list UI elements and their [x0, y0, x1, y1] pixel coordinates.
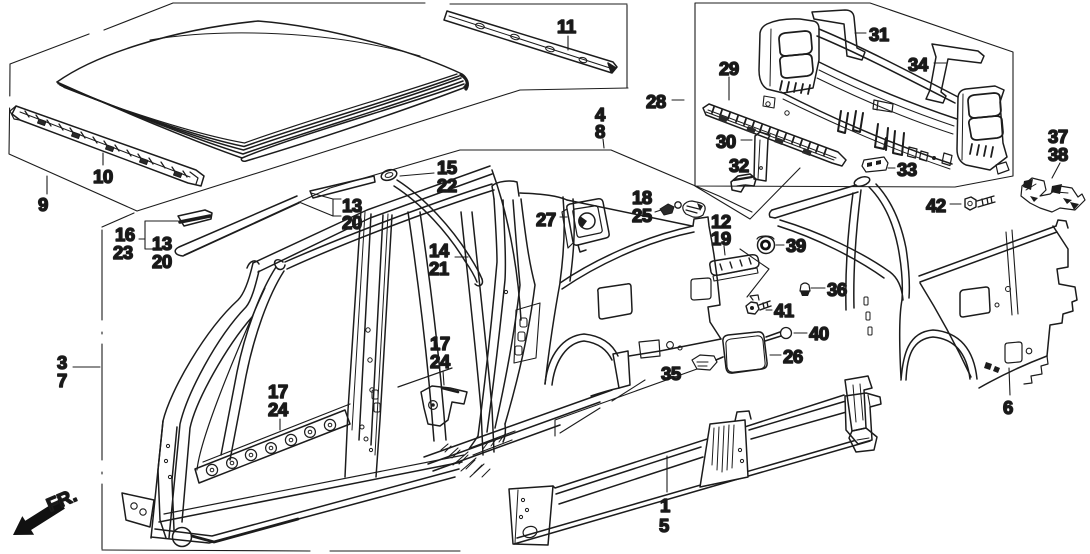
svg-text:29: 29	[719, 58, 739, 79]
svg-text:39: 39	[786, 235, 806, 256]
svg-text:20: 20	[152, 251, 172, 272]
svg-text:28: 28	[646, 91, 666, 112]
svg-text:FR.: FR.	[44, 485, 80, 516]
svg-text:36: 36	[827, 279, 847, 300]
svg-text:30: 30	[716, 131, 736, 152]
svg-text:34: 34	[908, 54, 929, 75]
svg-text:41: 41	[774, 300, 794, 321]
svg-text:8: 8	[595, 121, 605, 142]
svg-text:10: 10	[93, 166, 113, 187]
svg-text:23: 23	[113, 242, 133, 263]
svg-text:6: 6	[1003, 397, 1013, 418]
svg-text:25: 25	[632, 205, 652, 226]
svg-text:24: 24	[430, 351, 451, 372]
svg-text:42: 42	[926, 195, 946, 216]
svg-text:24: 24	[268, 399, 289, 420]
svg-text:1: 1	[660, 495, 670, 516]
svg-text:21: 21	[429, 258, 449, 279]
svg-text:26: 26	[783, 346, 803, 367]
svg-text:19: 19	[711, 228, 731, 249]
svg-text:7: 7	[57, 370, 67, 391]
svg-text:11: 11	[557, 16, 576, 37]
svg-text:9: 9	[38, 194, 48, 215]
svg-text:27: 27	[536, 209, 556, 230]
svg-text:5: 5	[659, 515, 669, 536]
svg-text:38: 38	[1048, 144, 1068, 165]
svg-text:40: 40	[809, 323, 829, 344]
svg-text:31: 31	[869, 24, 889, 45]
svg-text:33: 33	[897, 159, 917, 180]
svg-text:32: 32	[729, 155, 749, 176]
